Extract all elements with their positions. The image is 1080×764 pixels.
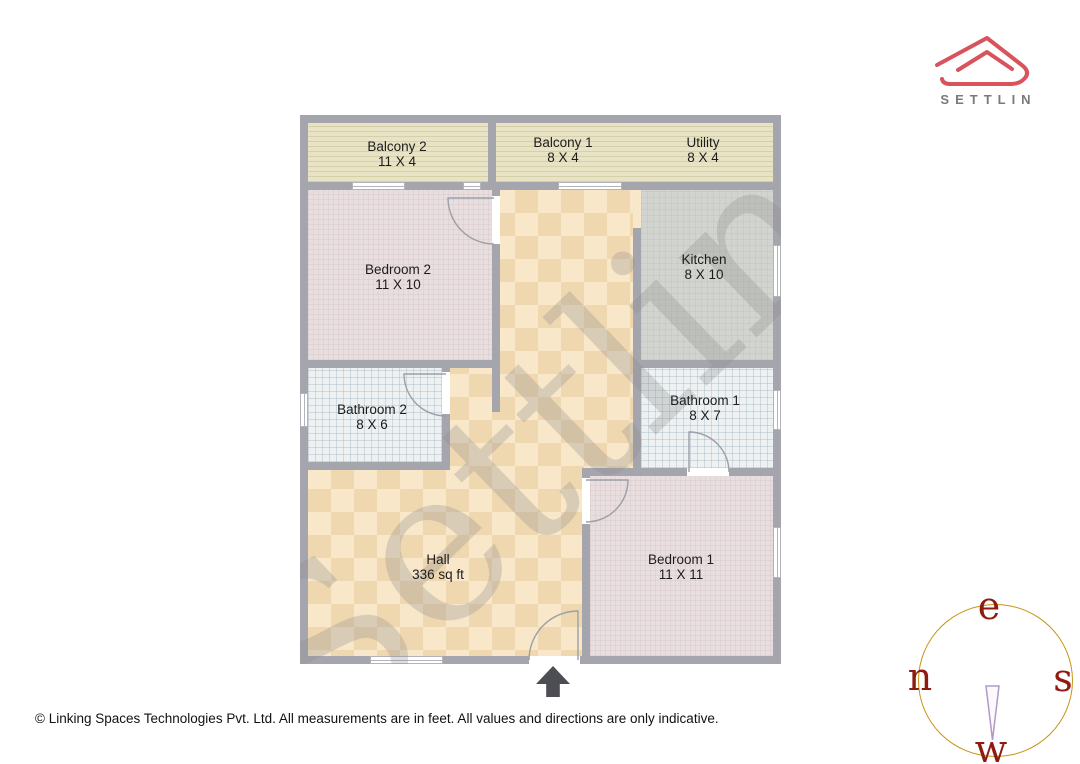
room-name: Bathroom 1 <box>670 393 740 408</box>
bedroom1-door-arc <box>586 480 628 522</box>
entrance-door-arc <box>529 611 578 660</box>
room-dims: 8 X 6 <box>337 417 407 432</box>
room-name: Hall <box>412 552 464 567</box>
label-kitchen: Kitchen 8 X 10 <box>681 252 726 282</box>
label-utility: Utility 8 X 4 <box>687 135 720 165</box>
room-dims: 8 X 4 <box>687 150 720 165</box>
room-dims: 8 X 7 <box>670 408 740 423</box>
compass-north-label: n <box>908 658 932 696</box>
label-bathroom-1: Bathroom 1 8 X 7 <box>670 393 740 423</box>
room-name: Balcony 1 <box>533 135 592 150</box>
room-name: Utility <box>687 135 720 150</box>
room-name: Bathroom 2 <box>337 402 407 417</box>
room-dims: 8 X 10 <box>681 267 726 282</box>
settlin-logo-text: SETTLIN <box>928 92 1043 107</box>
room-name: Kitchen <box>681 252 726 267</box>
room-dims: 11 X 4 <box>367 154 426 169</box>
label-bedroom-2: Bedroom 2 11 X 10 <box>365 262 431 292</box>
room-dims: 8 X 4 <box>533 150 592 165</box>
copyright-text: © Linking Spaces Technologies Pvt. Ltd. … <box>35 711 719 726</box>
room-name: Bedroom 1 <box>648 552 714 567</box>
label-balcony-1: Balcony 1 8 X 4 <box>533 135 592 165</box>
room-name: Bedroom 2 <box>365 262 431 277</box>
bathroom1-door-arc <box>689 432 729 472</box>
room-dims: 11 X 10 <box>365 277 431 292</box>
entrance-arrow-icon <box>536 666 570 697</box>
compass-south-label: s <box>1053 659 1073 697</box>
compass-east-label: e <box>978 587 1001 625</box>
label-balcony-2: Balcony 2 11 X 4 <box>367 139 426 169</box>
room-dims: 336 sq ft <box>412 567 464 582</box>
label-hall: Hall 336 sq ft <box>412 552 464 582</box>
label-bedroom-1: Bedroom 1 11 X 11 <box>648 552 714 582</box>
floorplan: Settlin Balcony 2 11 X 4 Balcony 1 8 X 4… <box>300 115 781 664</box>
bathroom2-door-arc <box>404 374 446 416</box>
compass-west-label: w <box>975 730 1008 764</box>
room-dims: 11 X 11 <box>648 567 714 582</box>
label-bathroom-2: Bathroom 2 8 X 6 <box>337 402 407 432</box>
floorplan-page: { "logo": { "brand": "SETTLIN", "mark_co… <box>0 0 1080 764</box>
bedroom2-door-arc <box>448 198 494 244</box>
settlin-logo: SETTLIN <box>928 28 1043 107</box>
settlin-logo-icon <box>931 28 1041 90</box>
room-name: Balcony 2 <box>367 139 426 154</box>
